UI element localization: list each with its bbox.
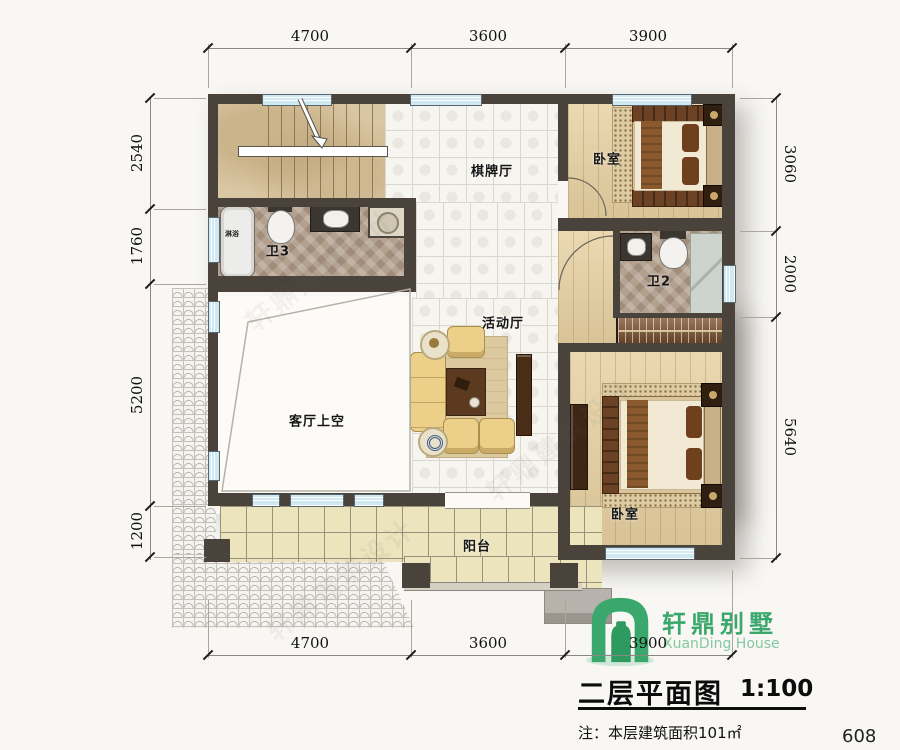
tv-console (516, 354, 532, 436)
dim-left-3: 5200 (128, 376, 146, 414)
window (605, 547, 695, 560)
pillow (682, 124, 699, 152)
room-label-living-void: 客厅上空 (289, 411, 345, 430)
bed2-blanket (627, 400, 648, 488)
armchair (479, 418, 515, 454)
stair-railing (238, 146, 388, 157)
window (723, 265, 736, 303)
extension-line (154, 557, 206, 558)
room-label-balcony: 阳台 (463, 536, 491, 555)
brand-name-cn: 轩鼎别墅 (662, 604, 778, 639)
window (208, 301, 220, 333)
drawing-title: 二层平面图 (578, 672, 723, 711)
bed-blanket (641, 121, 662, 189)
extension-line (740, 558, 774, 559)
side-table (420, 330, 450, 360)
room-label-chess-hall: 棋牌厅 (471, 161, 513, 180)
pillow (682, 157, 699, 185)
extension-line (154, 98, 206, 99)
window (612, 94, 692, 106)
toilet (267, 210, 295, 244)
dim-left-1: 2540 (128, 134, 146, 172)
floor-plan-page: 淋浴 (0, 0, 900, 750)
area-note: 注：本层建筑面积101㎡ (578, 722, 742, 743)
vestibule-floor (558, 231, 618, 345)
chess-hall-floor-a (385, 103, 558, 202)
extension-line (732, 44, 733, 88)
plant (429, 338, 439, 348)
room-label-activity-hall: 活动厅 (482, 313, 524, 332)
brand-logo-icon (584, 592, 658, 668)
dim-bottom-1: 4700 (291, 634, 329, 652)
drawing-scale: 1:100 (740, 676, 813, 702)
dim-right-2: 2000 (781, 255, 799, 293)
wall-bedroom1-left (558, 94, 568, 181)
wall-bath3-right (404, 198, 416, 290)
dim-top-1: 4700 (291, 27, 329, 45)
dim-right-3: 5640 (781, 418, 799, 456)
shower-area (690, 233, 724, 315)
dimension-line-left (150, 98, 151, 560)
bed-rail-bottom (632, 190, 706, 207)
living-void-floor (218, 296, 412, 494)
bath2-sink-counter (620, 233, 652, 261)
title-underline (578, 707, 806, 710)
bath2-toilet (659, 237, 688, 269)
coffee-table (446, 368, 486, 416)
window (410, 94, 482, 106)
extension-line (208, 600, 209, 658)
wall-bedroom1-bath2 (558, 218, 722, 231)
room-label-bath3: 卫3 (266, 241, 290, 260)
dimension-line-right (776, 98, 777, 560)
bath2-sink (627, 238, 646, 256)
extension-line (732, 570, 733, 658)
window (252, 494, 280, 507)
table-decor (427, 435, 443, 451)
wall-bedroom2-top (558, 343, 722, 352)
logo-house (611, 625, 630, 662)
dimension-line-top (208, 48, 732, 49)
pillar (402, 563, 430, 588)
dim-left-2: 1760 (128, 227, 146, 265)
bed-rail-top (632, 105, 706, 122)
extension-line (154, 506, 206, 507)
room-label-bedroom-top: 卧室 (593, 149, 621, 168)
dim-right-1: 3060 (781, 145, 799, 183)
dim-top-3: 3900 (629, 27, 667, 45)
wall-left (208, 94, 218, 506)
bed2-headboard (704, 402, 721, 488)
armchair (443, 418, 479, 454)
brand-name-en: XuanDing House (663, 636, 780, 652)
extension-line (411, 600, 412, 658)
dim-left-4: 1200 (128, 512, 146, 550)
dim-bottom-3: 3900 (629, 634, 667, 652)
extension-line (154, 209, 206, 210)
window (262, 94, 332, 106)
room-label-bath2: 卫2 (647, 271, 671, 290)
dim-top-2: 3600 (469, 27, 507, 45)
extension-line (565, 44, 566, 88)
side-table (418, 427, 448, 457)
armchair (447, 326, 485, 358)
shower-label: 淋浴 (225, 229, 239, 239)
extension-line (740, 231, 774, 232)
pillow (686, 406, 702, 438)
extension-line (740, 317, 774, 318)
pillar (204, 539, 230, 562)
pillow (686, 448, 702, 480)
wall-right (722, 94, 735, 560)
window (208, 451, 220, 481)
extension-line (208, 44, 209, 88)
room-label-bedroom-bottom: 卧室 (611, 504, 639, 523)
table-decor (469, 397, 480, 408)
extension-line (740, 98, 774, 99)
dim-bottom-2: 3600 (469, 634, 507, 652)
wall-bath2-bottom (613, 313, 722, 318)
dimension-line-bottom (208, 655, 732, 656)
page-number: 608 (842, 726, 876, 747)
logo-house-top (616, 621, 626, 627)
extension-line (411, 44, 412, 88)
window (208, 217, 220, 263)
sofa-long (410, 352, 446, 432)
table-decor (454, 377, 471, 391)
bathtub: 淋浴 (220, 206, 255, 278)
window (354, 494, 384, 507)
chess-hall-floor-b (416, 202, 558, 298)
pillar (550, 563, 578, 588)
extension-line (565, 600, 566, 658)
wardrobe-rail (618, 330, 724, 332)
extension-line (154, 284, 206, 285)
window (290, 494, 344, 507)
wall-bath2-left (613, 231, 620, 318)
